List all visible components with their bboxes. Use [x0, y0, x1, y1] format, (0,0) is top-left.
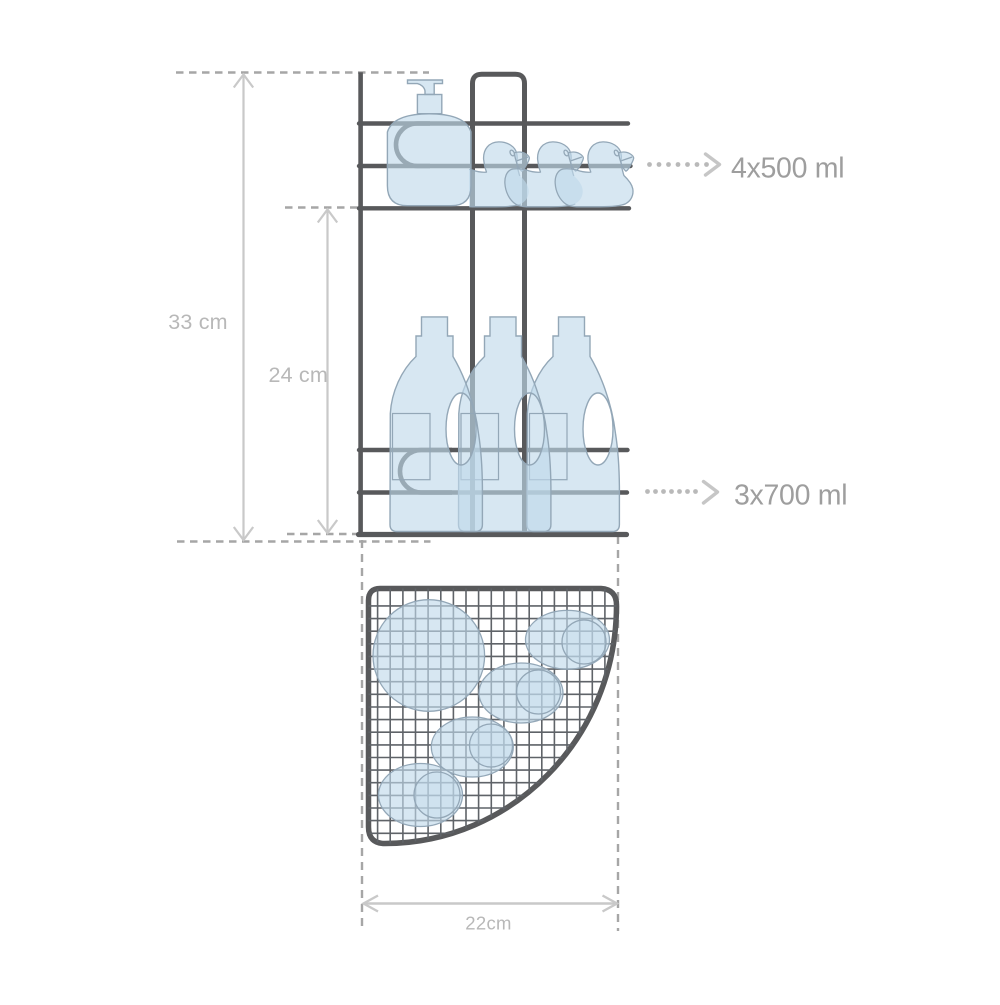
svg-text:4x500 ml: 4x500 ml: [731, 152, 844, 184]
svg-text:33 cm: 33 cm: [168, 310, 228, 334]
svg-text:24 cm: 24 cm: [268, 363, 328, 387]
svg-text:22cm: 22cm: [465, 913, 511, 934]
svg-text:3x700 ml: 3x700 ml: [734, 480, 847, 512]
